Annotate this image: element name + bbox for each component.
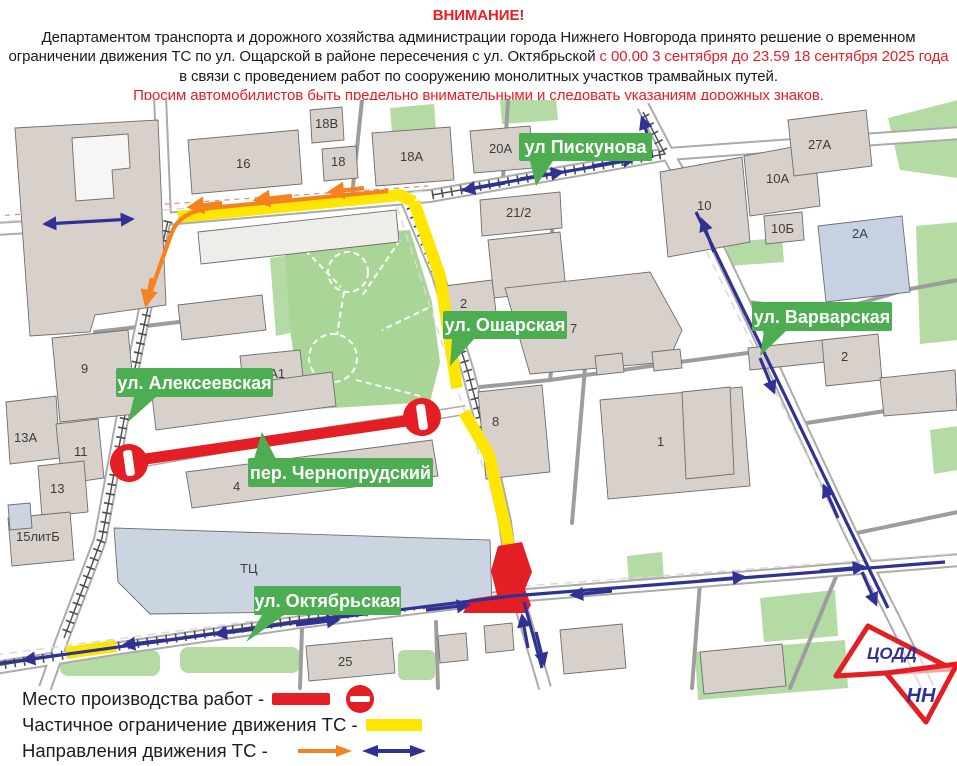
legend-row-partial-restriction: Частичное ограничение движения ТС - — [22, 712, 426, 738]
blue-double-arrow-symbol — [362, 743, 426, 759]
building-number: 1 — [657, 434, 664, 449]
orange-arrow-symbol — [298, 743, 354, 759]
building-number: 10Б — [771, 221, 794, 236]
svg-text:ул. Октябрьская: ул. Октябрьская — [254, 591, 400, 611]
building-number: 25 — [338, 654, 352, 669]
svg-text:ул. Алексеевская: ул. Алексеевская — [117, 373, 271, 393]
building-number: 13 — [50, 481, 64, 496]
logo-text-codd: ЦОДД — [867, 644, 917, 663]
building-number: 18В — [315, 116, 338, 131]
legend-label: Направления движения ТС - — [22, 740, 268, 762]
building-number: 13А — [14, 430, 37, 445]
announcement-reason: в связи с проведением работ по сооружени… — [179, 68, 778, 85]
legend-row-work-site: Место производства работ - — [22, 686, 426, 712]
building-number: 2 — [460, 296, 467, 311]
traffic-notice-poster: ВНИМАНИЕ! Департаментом транспорта и дор… — [0, 0, 957, 766]
building-number: 10 — [697, 198, 711, 213]
announcement-paragraph: Департаментом транспорта и дорожного хоз… — [4, 28, 953, 87]
building-number: 8 — [492, 414, 499, 429]
svg-text:ул. Варварская: ул. Варварская — [754, 307, 891, 327]
building-number: 15литБ — [16, 529, 60, 544]
building-number: 27А — [808, 137, 831, 152]
logo-text-nn: НН — [907, 685, 936, 707]
building-number: 20А — [489, 141, 512, 156]
legend-row-directions: Направления движения ТС - — [22, 738, 426, 764]
legend: Место производства работ - Частичное огр… — [22, 686, 426, 764]
restriction-line-swatch — [366, 719, 422, 731]
building-number: 16 — [236, 156, 250, 171]
announcement-dates: с 00.00 3 сентября до 23.59 18 сентября … — [595, 48, 948, 65]
svg-text:ул Пискунова: ул Пискунова — [525, 137, 648, 157]
partial-restriction-symbol — [366, 717, 424, 733]
building-number: 18 — [331, 154, 345, 169]
building-number: 2 — [841, 349, 848, 364]
legend-label: Частичное ограничение движения ТС - — [22, 714, 358, 736]
building-number: ТЦ — [240, 561, 258, 576]
svg-text:пер. Чернопрудский: пер. Чернопрудский — [250, 463, 431, 483]
building-number: 7 — [570, 321, 577, 336]
building-number: 9 — [81, 361, 88, 376]
building-number: 2А — [852, 226, 868, 241]
work-site-symbol — [272, 684, 378, 714]
building-number: 10А — [766, 171, 789, 186]
building-number: 4 — [233, 479, 240, 494]
svg-text:ул. Ошарская: ул. Ошарская — [445, 315, 566, 335]
building-number: 18А — [400, 149, 423, 164]
attention-title: ВНИМАНИЕ! — [0, 6, 957, 26]
city-map: 16 18В 18 18А 20А 21/2 10 10А 10Б 27А 2А… — [0, 100, 957, 766]
building-number: 21/2 — [506, 205, 531, 220]
building-number: 11 — [74, 444, 88, 459]
closure-line-swatch — [272, 693, 330, 705]
header: ВНИМАНИЕ! Департаментом транспорта и дор… — [0, 6, 957, 106]
legend-label: Место производства работ - — [22, 688, 264, 710]
